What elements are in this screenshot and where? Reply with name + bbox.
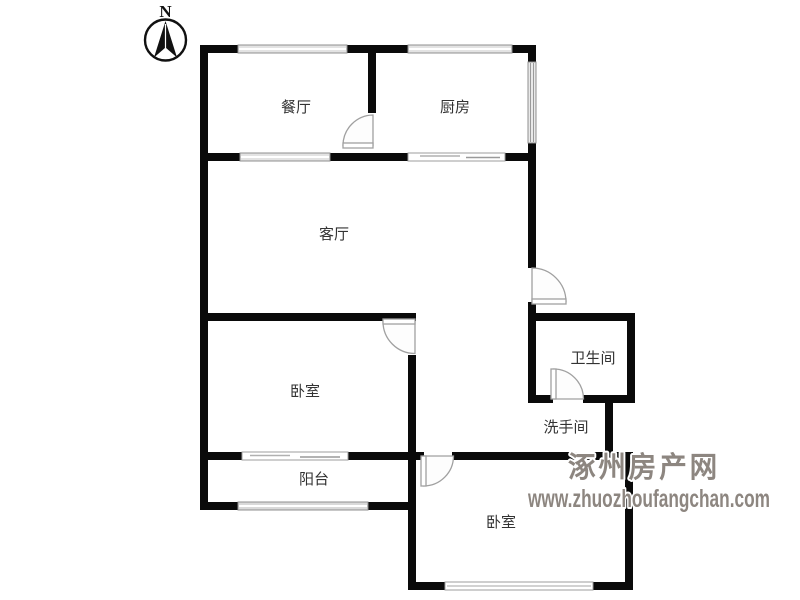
wall-bathroom-top (528, 313, 635, 321)
door-entrance (532, 268, 566, 302)
window-dining-top (238, 45, 347, 53)
window-dining-bottom (240, 153, 330, 161)
door-entrance-leaf (532, 299, 566, 304)
wall-bathroom-bottom-right (583, 395, 635, 403)
watermark-site-name: 涿州房产网 (568, 451, 720, 484)
room-label-bedroom-left: 卧室 (290, 383, 320, 400)
wall-bathroom-bottom-left (528, 395, 553, 403)
room-label-bedroom-bottom: 卧室 (486, 514, 516, 531)
wall-dining-kitchen (368, 45, 376, 113)
wall-bathroom-right (627, 313, 635, 403)
door-bedroom2-leaf (421, 456, 426, 486)
room-label-balcony: 阳台 (299, 471, 329, 488)
door-bedroom-left (383, 322, 415, 354)
wall-central-vertical (408, 355, 416, 590)
window-balcony-bottom (238, 502, 368, 510)
room-label-dining: 餐厅 (281, 99, 311, 116)
door-bathroom-leaf (551, 369, 556, 399)
door-bedroom-left-leaf (383, 319, 415, 324)
watermark-url: www.zhuozhoufangchan.com (527, 485, 770, 513)
window-bedroom-left-bottom (242, 452, 348, 460)
room-label-bathroom: 卫生间 (570, 350, 615, 367)
floor-plan-drawing: N 餐厅 厨房 客厅 卧室 卫生间 洗手间 阳台 卧室 涿州房产网 www.zh… (0, 0, 800, 600)
floor-plan-page: N 餐厅 厨房 客厅 卧室 卫生间 洗手间 阳台 卧室 涿州房产网 www.zh… (0, 0, 800, 600)
north-arrow: N (145, 2, 186, 61)
wall-outer-left (200, 45, 208, 510)
window-kitchen-right (528, 62, 536, 143)
window-bedroom2-bottom (445, 582, 593, 590)
room-label-kitchen: 厨房 (440, 99, 470, 116)
watermark: 涿州房产网 www.zhuozhoufangchan.com (527, 451, 770, 513)
north-label: N (159, 2, 172, 21)
door-bedroom2 (424, 456, 454, 486)
door-dining-kitchen-leaf (343, 143, 373, 148)
room-label-washroom: 洗手间 (543, 419, 588, 436)
door-dining-kitchen (343, 115, 373, 146)
room-label-living: 客厅 (319, 226, 349, 243)
window-kitchen-pass (408, 153, 505, 161)
door-bathroom (554, 369, 584, 399)
window-kitchen-top (408, 45, 512, 53)
